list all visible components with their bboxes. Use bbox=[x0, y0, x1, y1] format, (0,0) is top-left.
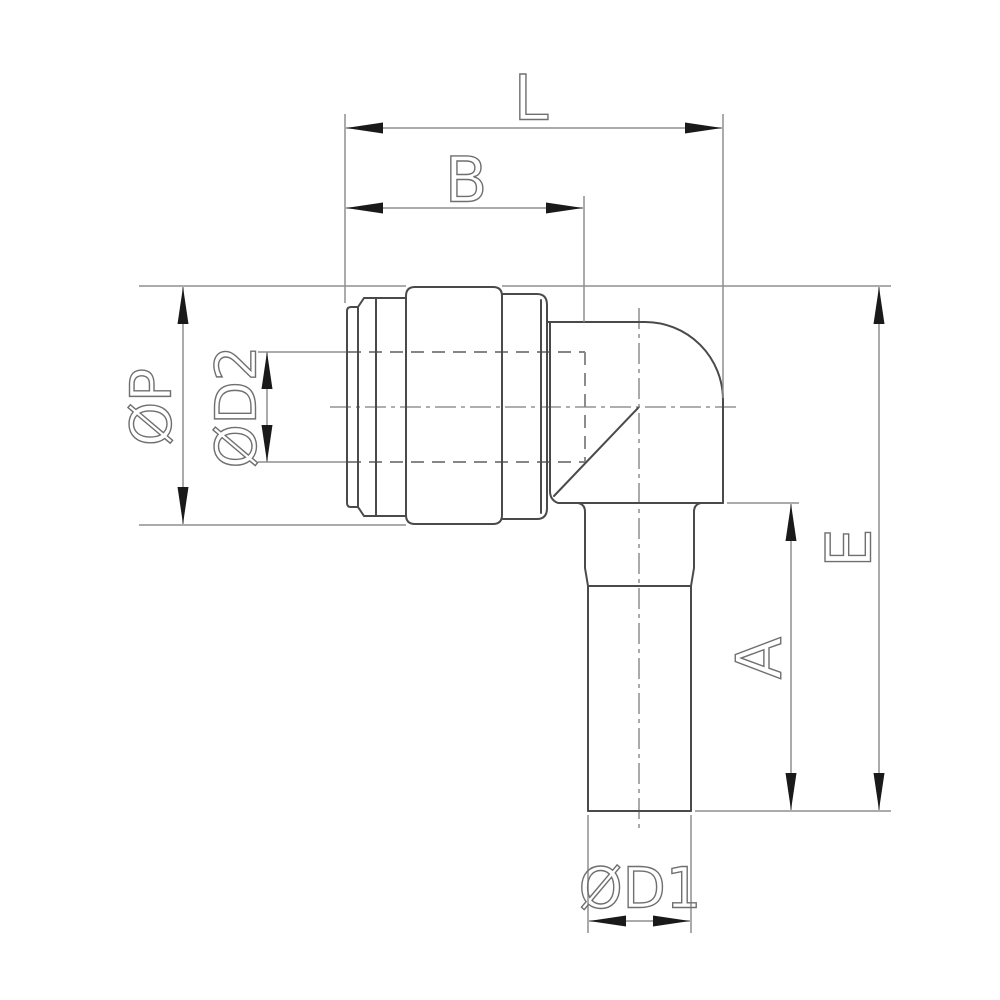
release-cap bbox=[406, 287, 502, 524]
arrowhead-down bbox=[786, 773, 797, 810]
dim-label-D1: ØD1 bbox=[579, 857, 702, 922]
arrowhead-right bbox=[546, 203, 583, 214]
arrowhead-left bbox=[346, 123, 383, 134]
dimension-B: B bbox=[346, 144, 584, 323]
dim-label-L: L bbox=[514, 62, 549, 135]
dimension-D1: ØD1 bbox=[579, 815, 702, 933]
dim-label-A: A bbox=[723, 637, 796, 679]
dim-label-E: E bbox=[813, 528, 886, 567]
stem-right-side bbox=[691, 503, 701, 811]
stem-left-side bbox=[578, 503, 588, 811]
dimension-A: A bbox=[723, 503, 800, 810]
dim-label-D2: ØD2 bbox=[205, 346, 270, 469]
dim-label-B: B bbox=[445, 144, 488, 217]
elbow-miter-line bbox=[554, 408, 638, 496]
arrowhead-left bbox=[346, 203, 383, 214]
arrowhead-right bbox=[685, 123, 722, 134]
dimension-E: E bbox=[502, 286, 891, 811]
technical-drawing-page: L B ØP ØD2 E A bbox=[0, 0, 1000, 1000]
dim-label-P: ØP bbox=[120, 368, 185, 446]
arrowhead-down bbox=[874, 773, 885, 810]
arrowhead-up bbox=[178, 287, 189, 324]
fitting-outline bbox=[347, 287, 723, 811]
arrowhead-up bbox=[874, 287, 885, 324]
arrowhead-down bbox=[178, 487, 189, 524]
elbow-body-bottom bbox=[550, 322, 723, 503]
dimension-L: L bbox=[345, 62, 723, 399]
dimension-D2: ØD2 bbox=[205, 346, 347, 469]
arrowhead-up bbox=[786, 504, 797, 541]
centerlines bbox=[330, 308, 741, 833]
elbow-fitting-drawing: L B ØP ØD2 E A bbox=[0, 0, 1000, 1000]
